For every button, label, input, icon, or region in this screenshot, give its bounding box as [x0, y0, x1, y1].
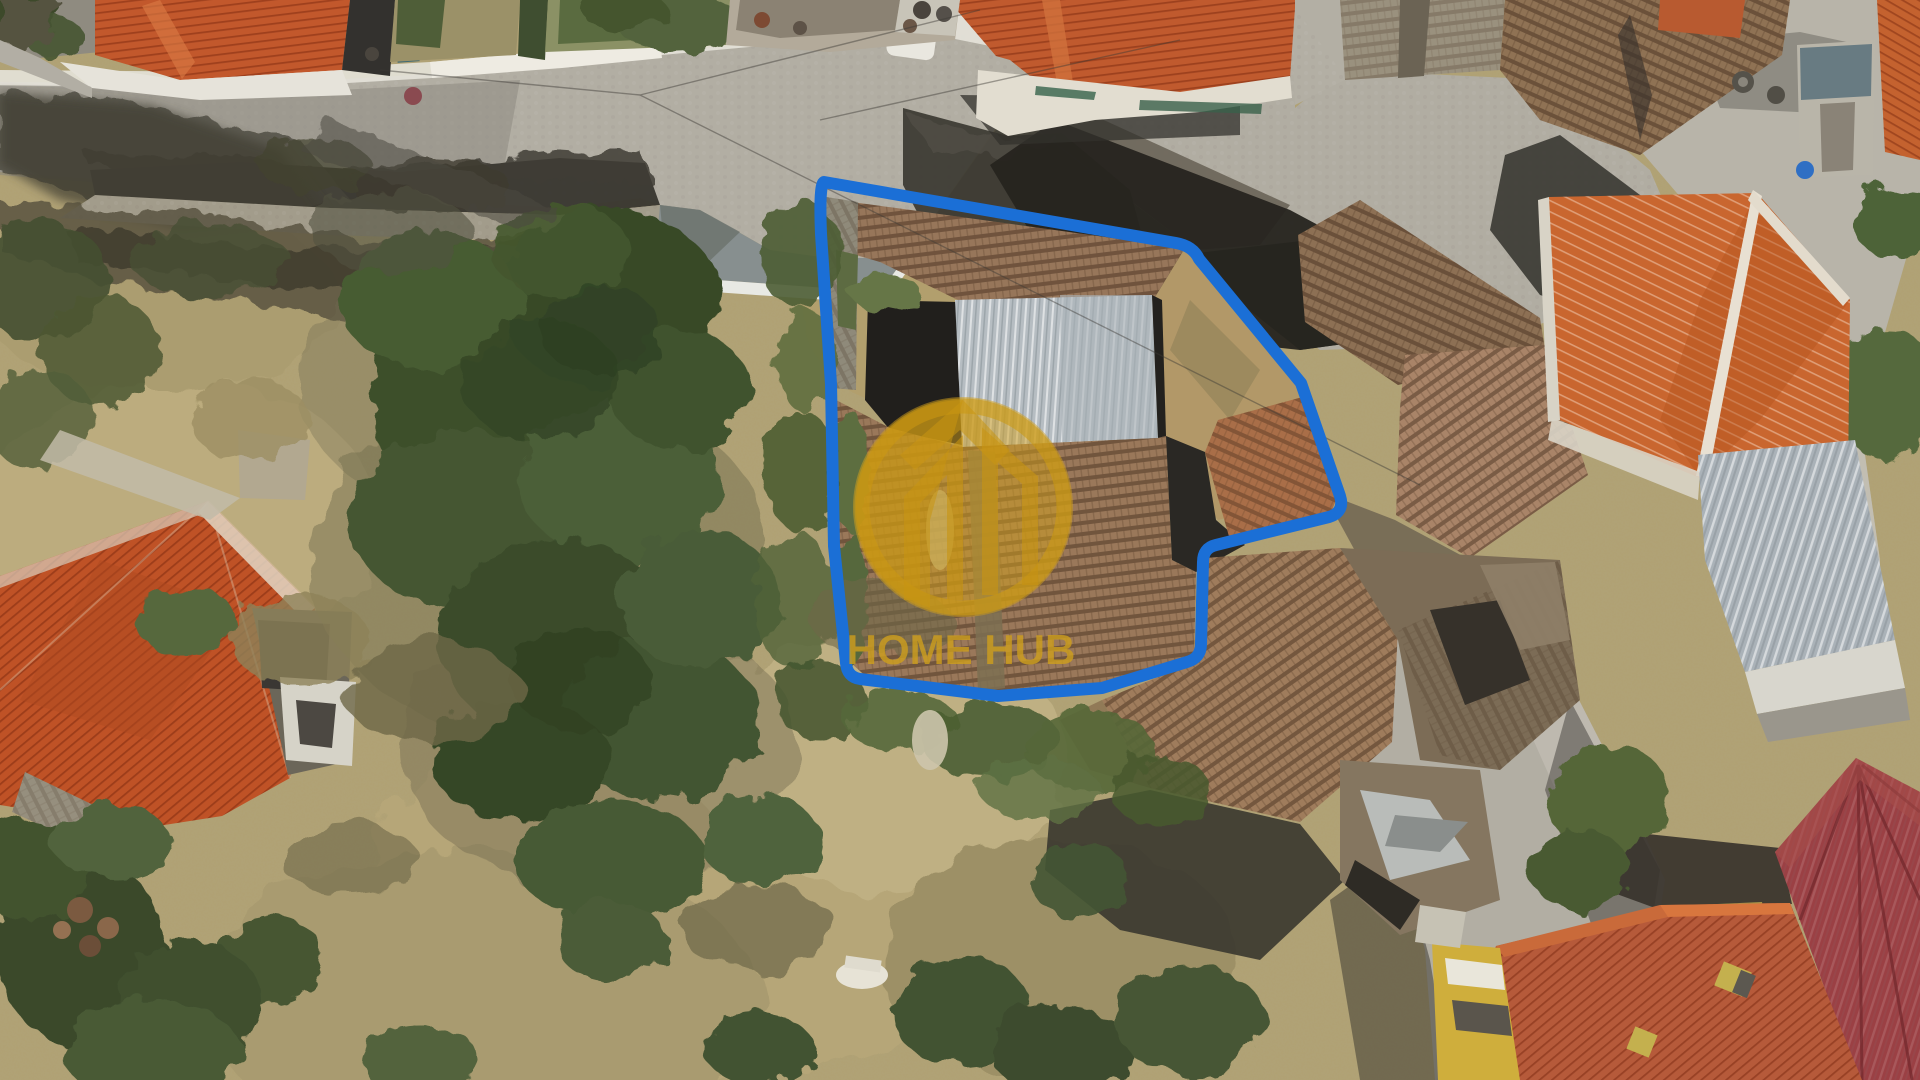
svg-text:HOME HUB: HOME HUB [847, 626, 1076, 673]
